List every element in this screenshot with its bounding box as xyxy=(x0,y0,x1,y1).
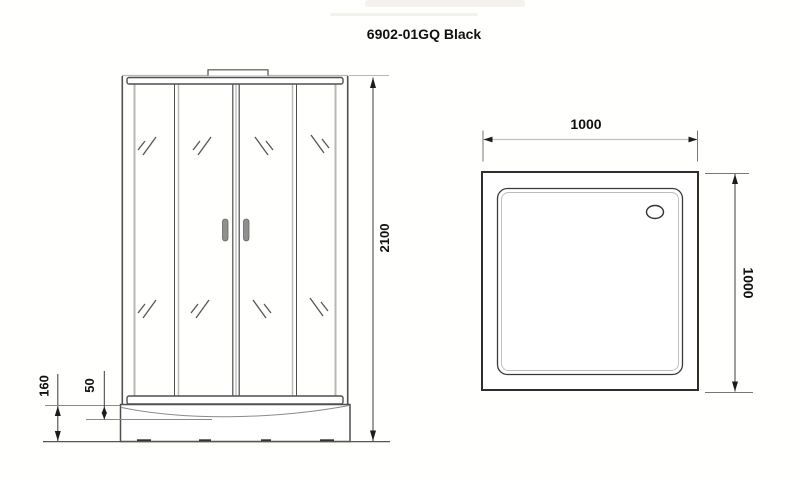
arrow-down-icon xyxy=(102,413,107,420)
dim-width-label: 1000 xyxy=(570,116,601,132)
front-view: 2100 160 50 xyxy=(36,70,392,442)
arrow-up-icon xyxy=(732,174,738,184)
top-view: 1000 1000 xyxy=(482,116,756,393)
roof-cap xyxy=(208,70,268,76)
glass-mark xyxy=(138,137,156,155)
dim-tray-height-label: 160 xyxy=(36,375,51,397)
dim-tray-lip-label: 50 xyxy=(82,378,97,392)
drawing-canvas: 6902-01GQ Black xyxy=(0,0,800,477)
dim-height: 2100 xyxy=(370,78,392,442)
arrow-up-icon xyxy=(102,407,107,414)
bottom-rail xyxy=(127,396,343,404)
arrow-down-icon xyxy=(370,431,376,442)
glass-mark xyxy=(191,300,209,318)
drain-hole xyxy=(647,206,664,219)
technical-drawing: 2100 160 50 xyxy=(0,0,800,477)
arrow-up-icon xyxy=(55,406,61,416)
dim-depth-label: 1000 xyxy=(740,267,756,298)
arrow-down-icon xyxy=(732,382,738,392)
dim-height-label: 2100 xyxy=(377,224,392,253)
dim-tray-height: 160 xyxy=(36,374,120,441)
glass-mark xyxy=(253,300,271,318)
glass-mark xyxy=(138,300,156,318)
glass-mark xyxy=(193,137,211,155)
glass-reflection-marks xyxy=(138,135,329,318)
arrow-right-icon xyxy=(689,137,698,143)
dim-width: 1000 xyxy=(483,116,698,162)
glass-mark xyxy=(255,137,273,155)
front-view-dark-lines xyxy=(121,70,351,442)
door-handle-right xyxy=(244,219,250,241)
arrow-up-icon xyxy=(370,78,376,89)
door-handle-left xyxy=(223,219,229,241)
dim-depth: 1000 xyxy=(705,174,756,393)
arrow-left-icon xyxy=(484,137,493,143)
arrow-down-icon xyxy=(55,431,61,441)
top-rail xyxy=(127,78,343,85)
front-view-gray-lines xyxy=(122,76,389,397)
glass-mark xyxy=(310,298,328,316)
glass-mark xyxy=(311,135,329,153)
tray-body xyxy=(121,405,351,442)
